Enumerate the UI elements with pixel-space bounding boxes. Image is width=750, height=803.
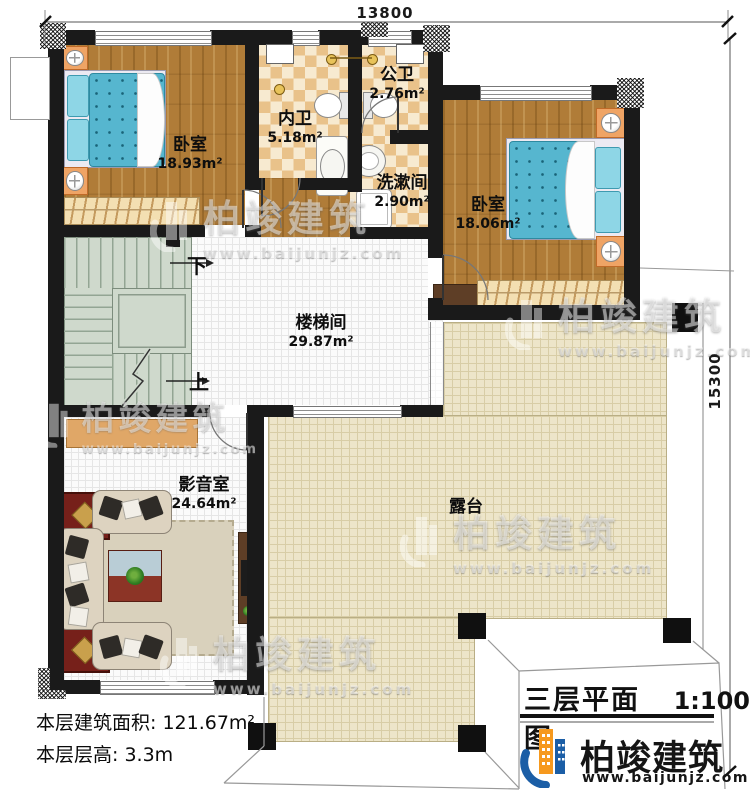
cushion: [98, 495, 123, 520]
cushion: [67, 561, 89, 583]
room-label-terrace: 露台: [430, 498, 502, 518]
room-name: 卧室: [436, 196, 540, 216]
pillow: [595, 191, 621, 233]
room-area: 29.87m²: [266, 334, 376, 350]
room-label-bedroom2: 卧室 18.06m²: [436, 196, 540, 232]
stair-landing-void: [112, 288, 192, 354]
terrace-floor-lower: [268, 617, 475, 742]
window: [100, 681, 215, 695]
section-hatch: [38, 690, 66, 699]
room-label-public-bathroom: 公卫 2.76m²: [357, 66, 437, 102]
floor-height-note: 本层层高: 3.3m: [36, 740, 173, 767]
plant-icon: [126, 567, 144, 585]
wall-bedroom2-top: [443, 85, 480, 100]
wall-bedroom2-bottom: [433, 305, 624, 320]
window: [480, 86, 592, 101]
floor-plan-canvas: 卧室 18.93m² 内卫 5.18m² 公卫 2.76m² 洗漱间 2.90m…: [0, 0, 750, 803]
room-name: 影音室: [152, 476, 256, 496]
cushion: [64, 582, 89, 607]
room-name: 楼梯间: [266, 314, 376, 334]
terrace-column: [458, 613, 486, 639]
cushion: [138, 634, 164, 660]
blanket: [565, 141, 595, 239]
terrace-column: [672, 303, 698, 332]
glass-partition: [430, 322, 444, 405]
wall-niche: [396, 44, 424, 64]
room-name: 洗漱间: [352, 174, 452, 194]
sliding-door: [293, 406, 402, 418]
sideboard: [66, 419, 198, 448]
wall-washroom-bottom: [350, 227, 443, 239]
nightstand: [62, 46, 88, 70]
wall-innerbath-bottom: [298, 178, 350, 190]
wall-terrace-stub: [400, 405, 443, 417]
dimension-width: 13800: [340, 4, 430, 22]
dimension-height: 15300: [706, 349, 724, 413]
towel-hook-icon: [367, 54, 378, 65]
window: [95, 31, 212, 46]
window: [292, 31, 320, 46]
exterior-ledge: [10, 57, 50, 120]
room-label-media-room: 影音室 24.64m²: [152, 476, 256, 512]
room-area: 2.76m²: [357, 86, 437, 102]
room-area: 18.06m²: [436, 216, 540, 232]
title-underline-thin: [520, 721, 714, 723]
stair-treads-left: [64, 288, 112, 380]
wall-terrace-stub: [264, 405, 293, 417]
wall-stairhall-bottom: [48, 405, 210, 417]
nightstand: [596, 108, 626, 138]
wall-media-bottom: [213, 680, 264, 694]
nightstand: [596, 236, 626, 267]
wall-media-right: [247, 405, 264, 695]
washroom-sink-basin: [359, 152, 379, 170]
section-hatch: [40, 23, 66, 49]
room-area: 24.64m²: [152, 496, 256, 512]
wall-left-outer: [48, 30, 64, 695]
floor-area-note: 本层建筑面积: 121.67m²: [36, 708, 255, 735]
towel-hook-icon: [326, 54, 337, 65]
pillow: [67, 75, 89, 117]
section-hatch: [361, 22, 388, 37]
cushion: [65, 535, 89, 559]
nightstand: [62, 167, 88, 195]
drawing-scale: 1:100: [674, 687, 750, 715]
stair-treads-bottom: [112, 352, 190, 405]
title-underline: [520, 714, 714, 718]
section-hatch: [617, 78, 644, 108]
brand-logo-icon: [519, 726, 573, 788]
stair-up-label: 上: [189, 366, 209, 395]
sofa-left: [58, 528, 104, 630]
pillow: [67, 119, 89, 161]
cushion: [68, 606, 89, 627]
coffee-table: [108, 550, 162, 602]
wall-bedroom1-bottom: [48, 225, 205, 237]
section-hatch: [423, 25, 450, 52]
room-name: 露台: [430, 498, 502, 518]
wall-niche: [266, 44, 294, 64]
room-name: 内卫: [252, 110, 338, 130]
sofa-bottom: [92, 622, 172, 670]
pillow: [595, 147, 621, 189]
wardrobe: [64, 197, 200, 225]
wall-publicbath-bottom: [390, 130, 428, 144]
room-name: 公卫: [357, 66, 437, 86]
wall-bedroom1-bath: [245, 30, 259, 178]
terrace-column: [458, 725, 486, 752]
brand-website: www.baijunjz.com: [582, 770, 749, 786]
towel-hook-icon: [274, 84, 285, 95]
room-area: 18.93m²: [138, 156, 242, 172]
wall-right-outer: [624, 85, 640, 320]
room-area: 5.18m²: [252, 130, 338, 146]
cushion: [99, 635, 123, 659]
room-label-stairwell: 楼梯间 29.87m²: [266, 314, 376, 350]
room-label-bedroom1: 卧室 18.93m²: [138, 136, 242, 172]
wardrobe: [477, 280, 626, 308]
terrace-column: [663, 618, 691, 643]
room-name: 卧室: [138, 136, 242, 156]
stair-newel-post: [166, 237, 180, 247]
wall-innerbath-bottom: [245, 178, 265, 190]
stair-down-label: 下: [187, 250, 207, 279]
terrace-floor-upper: [443, 322, 667, 417]
wall-bedroom1-bottom-stub: [245, 225, 261, 237]
room-label-inner-bathroom: 内卫 5.18m²: [252, 110, 338, 146]
